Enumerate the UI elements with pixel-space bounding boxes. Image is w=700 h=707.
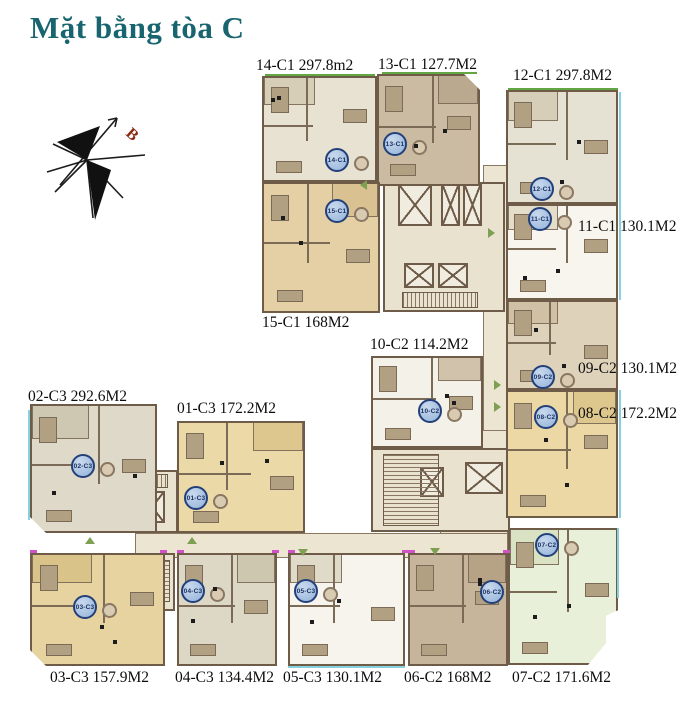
staircase — [383, 454, 439, 526]
arrow-icon — [494, 380, 501, 390]
arrow-icon — [494, 402, 501, 412]
dining-table — [557, 215, 572, 230]
furniture — [46, 644, 72, 656]
unit-badge[interactable]: 01-C3 — [184, 486, 208, 510]
inner-wall — [566, 392, 568, 469]
inner-wall — [508, 449, 571, 451]
unit-badge[interactable]: 13-C1 — [383, 132, 407, 156]
furniture — [514, 310, 532, 336]
unit-badge[interactable]: 10-C2 — [418, 399, 442, 423]
inner-wall — [410, 605, 466, 607]
furniture — [514, 102, 532, 128]
furniture — [39, 417, 57, 443]
door-marker — [310, 620, 314, 624]
furniture — [385, 428, 411, 440]
room-area — [438, 358, 481, 381]
door-marker — [133, 474, 137, 478]
corner-tick — [272, 550, 279, 553]
unit-label: 15-C1 168M2 — [262, 314, 349, 332]
furniture — [447, 116, 471, 130]
inner-wall — [307, 184, 309, 263]
door-marker — [265, 459, 269, 463]
furniture — [40, 565, 58, 591]
furniture — [520, 495, 546, 507]
furniture — [244, 600, 268, 614]
elevator-shaft — [463, 184, 482, 226]
door-marker — [277, 96, 281, 100]
unit-badge[interactable]: 03-C3 — [73, 595, 97, 619]
inner-wall — [508, 143, 556, 145]
door-marker — [100, 625, 104, 629]
door-marker — [281, 216, 285, 220]
north-label: B — [122, 125, 142, 145]
furniture — [584, 140, 608, 154]
dining-table — [323, 587, 338, 602]
unit-label: 05-C3 130.1M2 — [283, 669, 382, 687]
unit-badge[interactable]: 07-C2 — [535, 533, 559, 557]
unit-03-C3[interactable] — [30, 553, 165, 666]
furniture — [193, 511, 219, 523]
door-marker — [534, 328, 538, 332]
furniture — [270, 476, 294, 490]
arrow-icon — [360, 180, 367, 190]
arrow-icon — [298, 549, 308, 556]
balcony-edge — [28, 410, 30, 520]
unit-12-C1[interactable] — [506, 90, 618, 204]
inner-wall — [432, 76, 434, 143]
unit-label: 10-C2 114.2M2 — [370, 336, 468, 354]
unit-label: 13-C1 127.7M2 — [378, 56, 477, 74]
inner-wall — [566, 92, 568, 160]
room-area — [237, 555, 275, 583]
furniture — [585, 583, 609, 597]
balcony-edge — [617, 528, 619, 598]
inner-wall — [508, 248, 556, 250]
arrow-icon — [488, 228, 495, 238]
door-marker — [299, 241, 303, 245]
inner-wall — [231, 555, 233, 623]
elevator-shaft — [441, 184, 460, 226]
door-marker — [533, 615, 537, 619]
unit-badge[interactable]: 05-C3 — [294, 579, 318, 603]
unit-05-C3[interactable] — [288, 553, 405, 666]
balcony-edge — [288, 666, 405, 668]
door-marker — [577, 140, 581, 144]
door-marker — [414, 144, 418, 148]
inner-wall — [549, 302, 551, 355]
unit-label: 11-C1 130.1M2 — [578, 218, 676, 236]
dining-table — [563, 413, 578, 428]
furniture — [584, 435, 608, 449]
furniture — [277, 290, 303, 302]
unit-15-C1[interactable] — [262, 182, 380, 313]
unit-badge[interactable]: 06-C2 — [480, 580, 504, 604]
furniture — [385, 86, 403, 112]
unit-06-C2[interactable] — [408, 553, 508, 666]
dining-table — [447, 407, 462, 422]
door-marker — [452, 401, 456, 405]
elevator-shaft — [404, 263, 434, 288]
furniture — [271, 195, 289, 221]
furniture — [371, 607, 395, 621]
door-marker — [271, 98, 275, 102]
inner-wall — [379, 126, 436, 128]
furniture — [390, 164, 416, 176]
arrow-icon — [187, 537, 197, 544]
corner-tick — [177, 550, 184, 553]
door-marker — [337, 599, 341, 603]
furniture — [190, 644, 216, 656]
door-marker — [52, 491, 56, 495]
dining-table — [559, 185, 574, 200]
unit-label: 02-C3 292.6M2 — [28, 388, 127, 406]
furniture — [276, 161, 302, 173]
door-marker — [523, 276, 527, 280]
room-area — [438, 76, 478, 104]
inner-wall — [510, 591, 557, 593]
unit-badge[interactable]: 08-C2 — [534, 405, 558, 429]
unit-badge[interactable]: 14-C1 — [325, 148, 349, 172]
corner-tick — [288, 550, 295, 553]
balcony-edge — [619, 92, 621, 300]
furniture — [584, 345, 608, 359]
unit-07-C2[interactable] — [508, 528, 618, 665]
edge-line — [508, 88, 618, 90]
unit-label: 06-C2 168M2 — [404, 669, 491, 687]
unit-label: 01-C3 172.2M2 — [177, 400, 276, 418]
dining-table — [100, 462, 115, 477]
unit-label: 04-C3 134.4M2 — [175, 669, 274, 687]
floorplan-canvas: Mặt bằng tòa C B 14-C114-C1 297.8m213-C1… — [0, 0, 700, 707]
door-marker — [445, 394, 449, 398]
unit-label: 12-C1 297.8M2 — [513, 67, 612, 85]
furniture — [520, 280, 546, 292]
unit-badge[interactable]: 12-C1 — [530, 177, 554, 201]
door-marker — [213, 587, 217, 591]
furniture — [522, 642, 548, 654]
inner-wall — [179, 605, 235, 607]
corner-tick — [160, 550, 167, 553]
unit-label: 14-C1 297.8m2 — [256, 57, 353, 75]
door-marker — [443, 129, 447, 133]
inner-wall — [264, 125, 313, 127]
unit-label: 09-C2 130.1M2 — [578, 360, 677, 378]
unit-13-C1[interactable] — [377, 74, 480, 186]
dining-table — [354, 207, 369, 222]
corner-tick — [30, 550, 37, 553]
door-marker — [567, 604, 571, 608]
furniture — [302, 644, 328, 656]
unit-label: 03-C3 157.9M2 — [50, 669, 149, 687]
furniture — [122, 459, 146, 473]
furniture — [421, 644, 447, 656]
inner-wall — [226, 423, 228, 490]
door-marker — [544, 438, 548, 442]
door-marker — [220, 461, 224, 465]
unit-01-C3[interactable] — [177, 421, 305, 533]
room-area — [253, 423, 303, 451]
door-marker — [560, 180, 564, 184]
compass-north-wedge — [57, 126, 100, 160]
furniture — [186, 433, 204, 459]
inner-wall — [462, 555, 464, 623]
dining-table — [564, 541, 579, 556]
inner-wall — [306, 78, 308, 141]
door-marker — [562, 364, 566, 368]
arrow-icon — [430, 548, 440, 555]
unit-label: 07-C2 171.6M2 — [512, 669, 611, 687]
furniture — [416, 565, 434, 591]
arrow-icon — [85, 537, 95, 544]
furniture — [516, 542, 534, 568]
unit-04-C3[interactable] — [177, 553, 277, 666]
furniture — [46, 510, 72, 522]
furniture — [379, 366, 397, 392]
unit-14-C1[interactable] — [262, 76, 377, 182]
corner-tick — [503, 550, 510, 553]
staircase — [402, 292, 478, 308]
furniture — [514, 403, 532, 429]
furniture — [584, 239, 608, 253]
room-area — [468, 555, 506, 583]
inner-wall — [264, 242, 330, 244]
unit-badge[interactable]: 11-C1 — [528, 207, 552, 231]
door-marker — [556, 269, 560, 273]
dining-table — [354, 156, 369, 171]
unit-badge[interactable]: 02-C3 — [71, 454, 95, 478]
elevator-shaft — [398, 184, 432, 226]
unit-badge[interactable]: 04-C3 — [181, 579, 205, 603]
door-marker — [565, 483, 569, 487]
unit-badge[interactable]: 15-C1 — [325, 199, 349, 223]
door-marker — [113, 640, 117, 644]
furniture — [343, 109, 367, 123]
furniture — [130, 592, 154, 606]
corner-tick — [408, 550, 415, 553]
dining-table — [102, 603, 117, 618]
elevator-shaft — [465, 462, 503, 494]
unit-label: 08-C2 172.2M2 — [578, 405, 677, 423]
inner-wall — [290, 605, 340, 607]
unit-badge[interactable]: 09-C2 — [531, 365, 555, 389]
compass-rose: B — [45, 100, 170, 238]
elevator-shaft — [438, 263, 468, 288]
inner-wall — [179, 473, 251, 475]
dining-table — [213, 494, 228, 509]
furniture — [346, 249, 370, 263]
door-marker — [191, 619, 195, 623]
dining-table — [560, 373, 575, 388]
inner-wall — [508, 342, 556, 344]
